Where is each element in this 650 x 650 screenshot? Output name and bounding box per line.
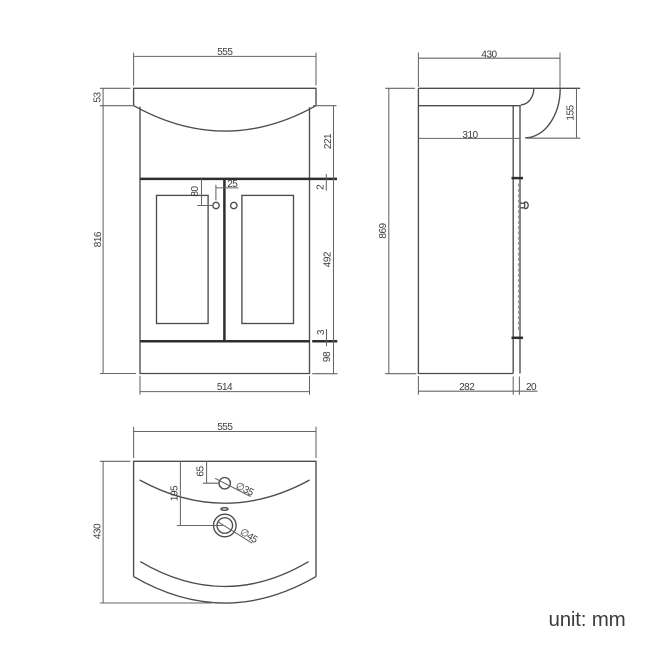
svg-text:65: 65 xyxy=(196,466,207,477)
svg-text:80: 80 xyxy=(190,186,201,197)
svg-text:310: 310 xyxy=(462,130,478,141)
svg-text:∅35: ∅35 xyxy=(234,481,256,500)
svg-text:195: 195 xyxy=(170,485,181,501)
svg-text:98: 98 xyxy=(322,351,333,362)
svg-text:430: 430 xyxy=(92,523,103,539)
svg-text:20: 20 xyxy=(526,382,537,393)
svg-text:155: 155 xyxy=(565,104,576,120)
svg-text:816: 816 xyxy=(93,231,104,247)
svg-text:2: 2 xyxy=(315,184,326,190)
svg-text:869: 869 xyxy=(378,222,389,238)
svg-text:25: 25 xyxy=(227,179,238,190)
svg-text:unit: mm: unit: mm xyxy=(549,608,626,631)
svg-text:430: 430 xyxy=(481,49,497,60)
svg-text:∅45: ∅45 xyxy=(238,527,260,547)
svg-text:555: 555 xyxy=(217,47,233,58)
svg-text:555: 555 xyxy=(217,422,233,433)
svg-text:514: 514 xyxy=(217,382,233,393)
svg-text:282: 282 xyxy=(459,382,475,393)
svg-text:492: 492 xyxy=(323,251,334,267)
svg-text:53: 53 xyxy=(93,92,104,103)
svg-text:3: 3 xyxy=(316,329,327,335)
svg-text:221: 221 xyxy=(323,133,334,149)
